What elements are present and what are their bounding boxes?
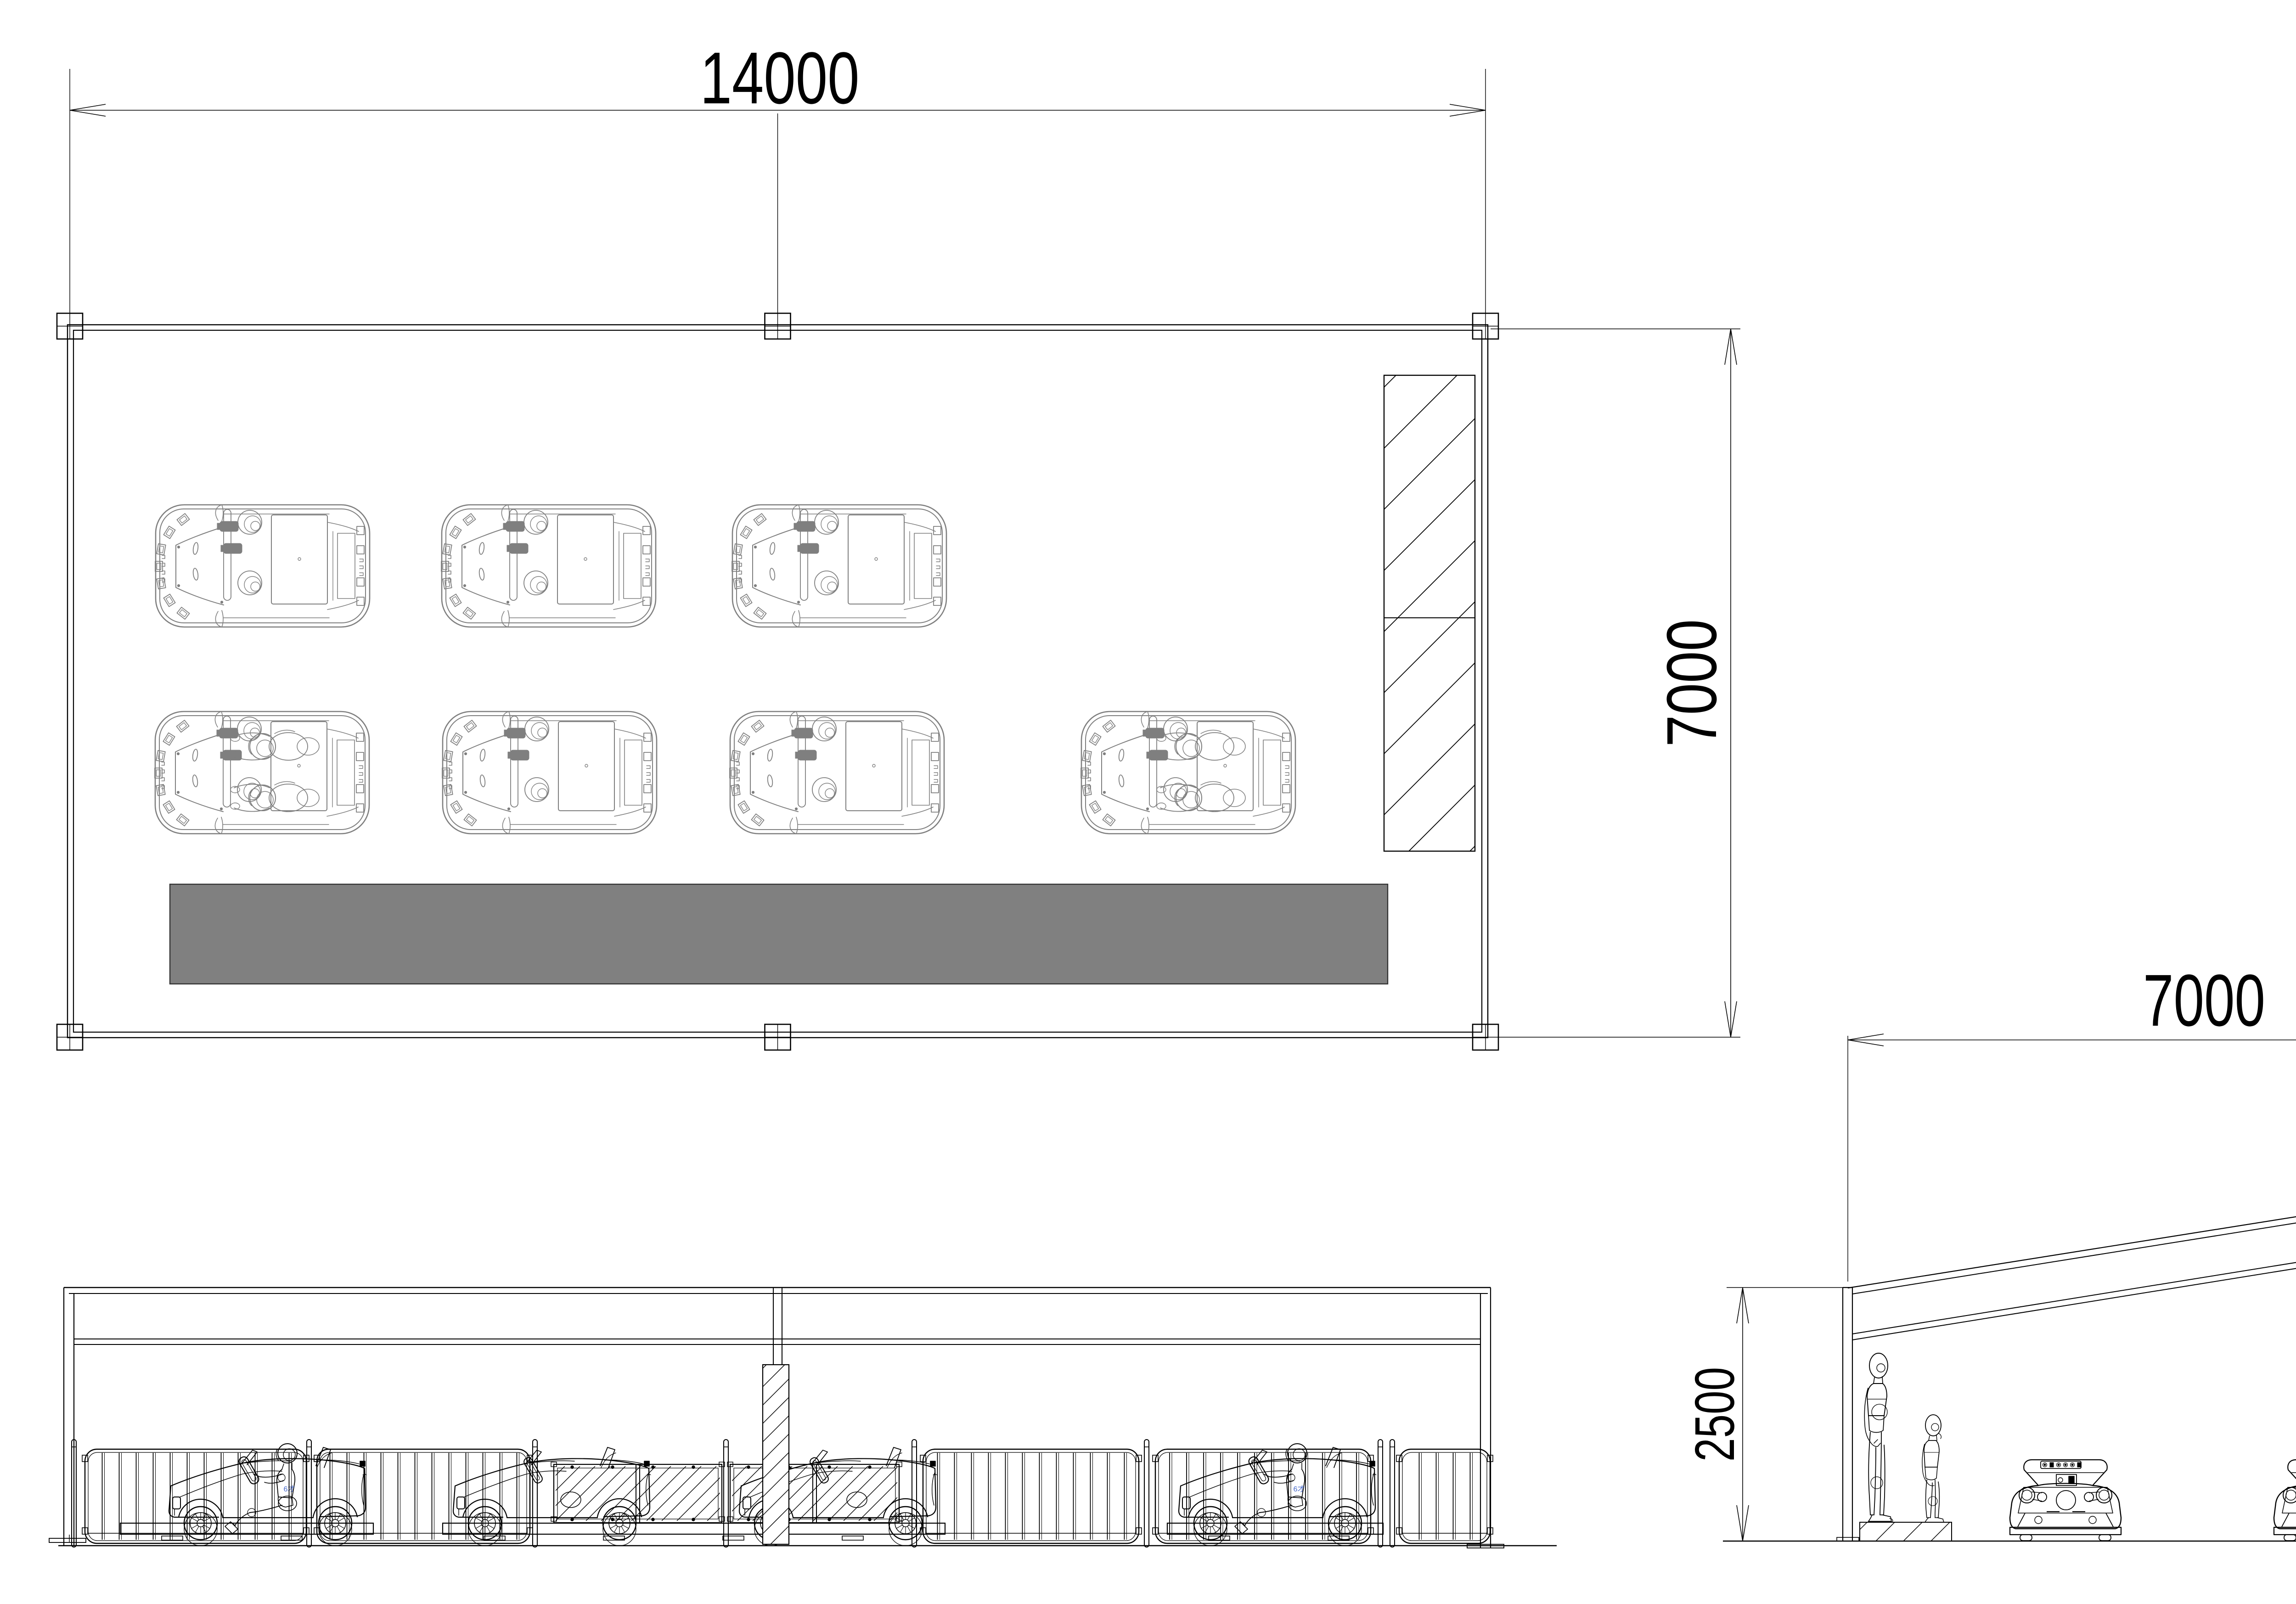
svg-text:7000: 7000 bbox=[1652, 619, 1731, 747]
svg-text:6才: 6才 bbox=[1294, 1485, 1305, 1493]
svg-text:2500: 2500 bbox=[1683, 1367, 1746, 1462]
svg-text:14000: 14000 bbox=[700, 37, 860, 119]
svg-text:7000: 7000 bbox=[2143, 959, 2265, 1041]
